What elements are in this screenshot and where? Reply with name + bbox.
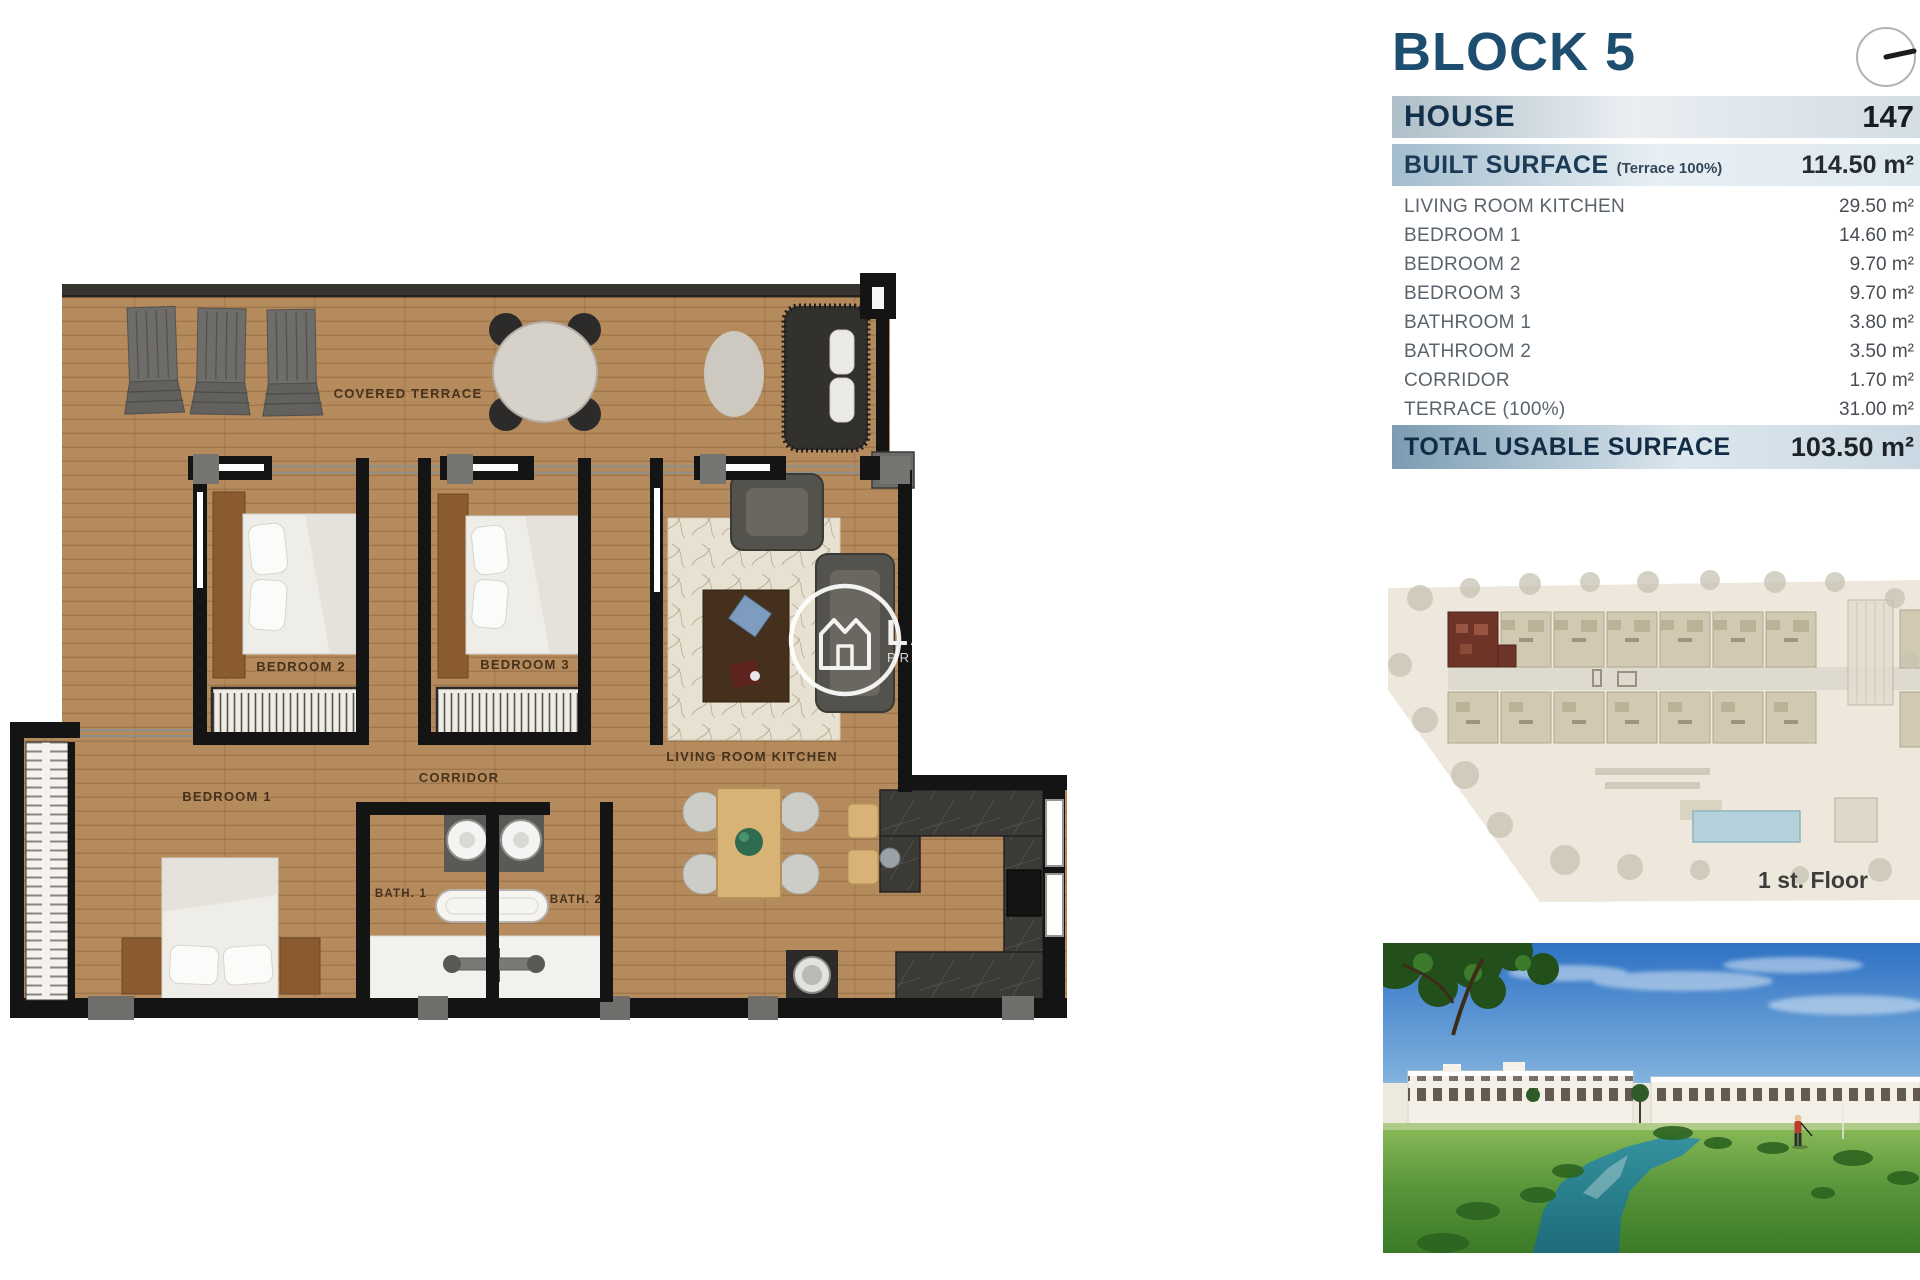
site-pool bbox=[1693, 811, 1800, 842]
wardrobe bbox=[212, 688, 358, 734]
bedroom3-furniture bbox=[437, 494, 584, 734]
terrace-rug bbox=[704, 331, 764, 417]
site-units-bottom-row bbox=[1448, 692, 1816, 743]
row-label: CORRIDOR bbox=[1404, 370, 1510, 392]
row-label: LIVING ROOM KITCHEN bbox=[1404, 196, 1625, 218]
site-plan-caption: 1 st. Floor bbox=[1758, 867, 1868, 893]
row-value: 14.60 m² bbox=[1839, 225, 1914, 247]
label-bedroom3: BEDROOM 3 bbox=[480, 657, 570, 672]
palm-tree bbox=[1631, 1084, 1649, 1102]
house-number: 147 bbox=[1862, 99, 1914, 135]
built-surface-bar: BUILT SURFACE (Terrace 100%) 114.50 m² bbox=[1392, 144, 1920, 186]
row-label: BEDROOM 3 bbox=[1404, 283, 1521, 305]
house-header-bar: HOUSE 147 bbox=[1392, 96, 1920, 138]
svg-text:PR: PR bbox=[887, 650, 913, 665]
total-value: 103.50 m² bbox=[1791, 432, 1914, 463]
surface-table: LIVING ROOM KITCHEN 29.50 m² BEDROOM 1 1… bbox=[1392, 192, 1920, 424]
wardrobe bbox=[437, 688, 583, 734]
table-row: BATHROOM 2 3.50 m² bbox=[1392, 337, 1920, 366]
row-value: 1.70 m² bbox=[1850, 370, 1914, 392]
label-bedroom1: BEDROOM 1 bbox=[182, 789, 272, 804]
bar-stool bbox=[848, 850, 878, 884]
bar-stool bbox=[848, 804, 878, 838]
row-label: BATHROOM 1 bbox=[1404, 312, 1531, 334]
label-bath1: BATH. 1 bbox=[375, 888, 427, 900]
table-row: LIVING ROOM KITCHEN 29.50 m² bbox=[1392, 192, 1920, 221]
row-value: 9.70 m² bbox=[1850, 254, 1914, 276]
row-value: 31.00 m² bbox=[1839, 399, 1914, 421]
built-surface-label: BUILT SURFACE bbox=[1404, 151, 1609, 180]
sink-faucet bbox=[880, 848, 900, 868]
house-label: HOUSE bbox=[1404, 100, 1516, 134]
label-covered-terrace: COVERED TERRACE bbox=[334, 386, 483, 401]
table-row: BEDROOM 2 9.70 m² bbox=[1392, 250, 1920, 279]
bedroom2-furniture bbox=[212, 492, 365, 734]
brochure-page: COVERED TERRACE BEDROOM 2 BEDROOM 3 CORR… bbox=[0, 0, 1920, 1280]
svg-text:LA: LA bbox=[886, 612, 938, 653]
terrace-sofa bbox=[784, 306, 868, 450]
label-bedroom2: BEDROOM 2 bbox=[256, 659, 346, 674]
row-value: 3.50 m² bbox=[1850, 341, 1914, 363]
floor-plan: COVERED TERRACE BEDROOM 2 BEDROOM 3 CORR… bbox=[0, 0, 1100, 1060]
sun-loungers bbox=[121, 306, 323, 416]
table-row: BEDROOM 3 9.70 m² bbox=[1392, 279, 1920, 308]
row-value: 9.70 m² bbox=[1850, 283, 1914, 305]
built-surface-value: 114.50 m² bbox=[1801, 151, 1914, 180]
row-value: 3.80 m² bbox=[1850, 312, 1914, 334]
built-surface-note: (Terrace 100%) bbox=[1617, 160, 1723, 177]
table-row: TERRACE (100%) 31.00 m² bbox=[1392, 395, 1920, 424]
exterior-render-photo bbox=[1383, 943, 1920, 1253]
row-label: BEDROOM 1 bbox=[1404, 225, 1521, 247]
site-plan: 1 st. Floor bbox=[1380, 570, 1920, 932]
row-label: BATHROOM 2 bbox=[1404, 341, 1531, 363]
stove bbox=[1007, 870, 1041, 916]
compass-icon bbox=[1848, 20, 1920, 92]
block-title: BLOCK 5 bbox=[1392, 24, 1636, 81]
row-value: 29.50 m² bbox=[1839, 196, 1914, 218]
window-shutter bbox=[26, 742, 68, 1000]
label-living-room: LIVING ROOM KITCHEN bbox=[666, 749, 838, 764]
row-label: BEDROOM 2 bbox=[1404, 254, 1521, 276]
label-bath2: BATH. 2 bbox=[550, 894, 602, 906]
total-surface-bar: TOTAL USABLE SURFACE 103.50 m² bbox=[1392, 425, 1920, 469]
terrace-dining-set bbox=[489, 313, 601, 431]
label-corridor: CORRIDOR bbox=[419, 770, 499, 785]
table-row: BATHROOM 1 3.80 m² bbox=[1392, 308, 1920, 337]
table-row: BEDROOM 1 14.60 m² bbox=[1392, 221, 1920, 250]
table-row: CORRIDOR 1.70 m² bbox=[1392, 366, 1920, 395]
total-label: TOTAL USABLE SURFACE bbox=[1404, 433, 1731, 462]
row-label: TERRACE (100%) bbox=[1404, 399, 1566, 421]
